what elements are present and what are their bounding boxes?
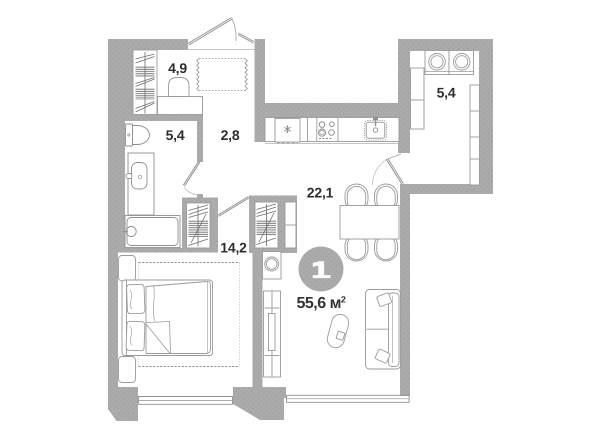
svg-text:4,9: 4,9 xyxy=(168,60,187,76)
svg-text:55,6 м2: 55,6 м2 xyxy=(297,295,346,313)
svg-text:2,8: 2,8 xyxy=(221,127,240,143)
svg-text:14,2: 14,2 xyxy=(220,240,247,256)
svg-text:5,4: 5,4 xyxy=(166,127,185,143)
svg-text:22,1: 22,1 xyxy=(307,185,334,201)
svg-text:5,4: 5,4 xyxy=(437,85,456,101)
